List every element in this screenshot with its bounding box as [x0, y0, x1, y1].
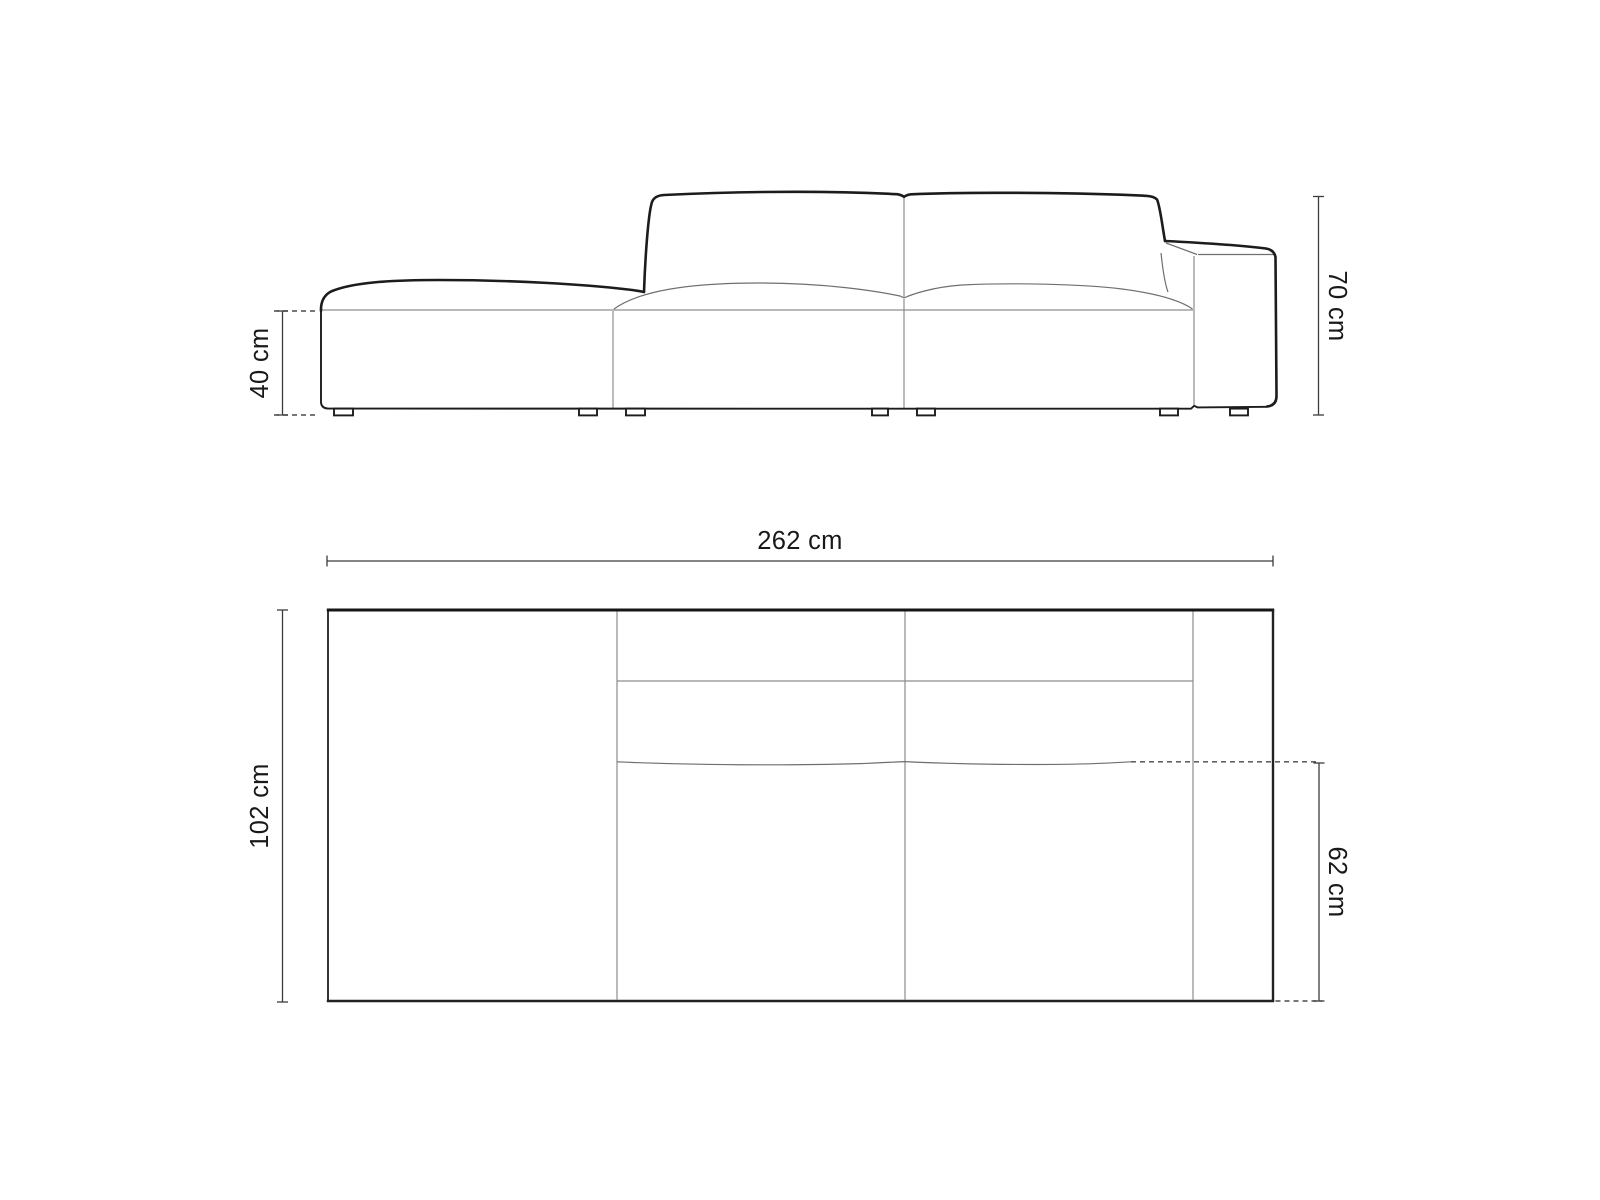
- sofa-leg: [872, 409, 888, 416]
- diagram-svg: 40 cm 70 cm 262 cm: [0, 0, 1600, 1200]
- seat-depth-label: 62 cm: [1323, 847, 1351, 918]
- overall-width-label: 262 cm: [757, 527, 842, 555]
- sofa-leg: [334, 409, 353, 416]
- armrest-outline: [1165, 241, 1277, 407]
- overall-height-label: 70 cm: [1323, 271, 1351, 342]
- seat-cushion-left-curve: [614, 283, 904, 309]
- front-elevation-view: [321, 192, 1277, 416]
- armrest-top-slant-edge: [1166, 243, 1197, 255]
- dimension-overall-depth: 102 cm: [246, 610, 288, 1002]
- sofa-dimension-diagram: 40 cm 70 cm 262 cm: [0, 0, 1600, 1200]
- overall-depth-label: 102 cm: [246, 763, 274, 848]
- chaise-top-outline: [321, 280, 644, 311]
- front-elevation-dimensions: 40 cm 70 cm: [246, 197, 1351, 416]
- backrest-side-edge: [1161, 253, 1168, 292]
- dimension-overall-height: 70 cm: [1313, 197, 1351, 416]
- sofa-leg: [626, 409, 645, 416]
- seat-cushion-right-curve: [904, 284, 1193, 309]
- sofa-left-and-bottom-outline: [321, 311, 1267, 409]
- sofa-leg: [579, 409, 597, 416]
- dimension-seat-depth: 62 cm: [1131, 762, 1351, 1001]
- sofa-leg: [1230, 409, 1248, 416]
- plan-back-cushion-front-edge: [617, 762, 1131, 765]
- seat-height-label: 40 cm: [246, 328, 274, 399]
- dimension-seat-height: 40 cm: [246, 311, 318, 415]
- sofa-leg: [917, 409, 935, 416]
- dimension-overall-width: 262 cm: [327, 527, 1273, 567]
- top-plan-view: [327, 610, 1274, 1001]
- sofa-leg: [1160, 409, 1178, 416]
